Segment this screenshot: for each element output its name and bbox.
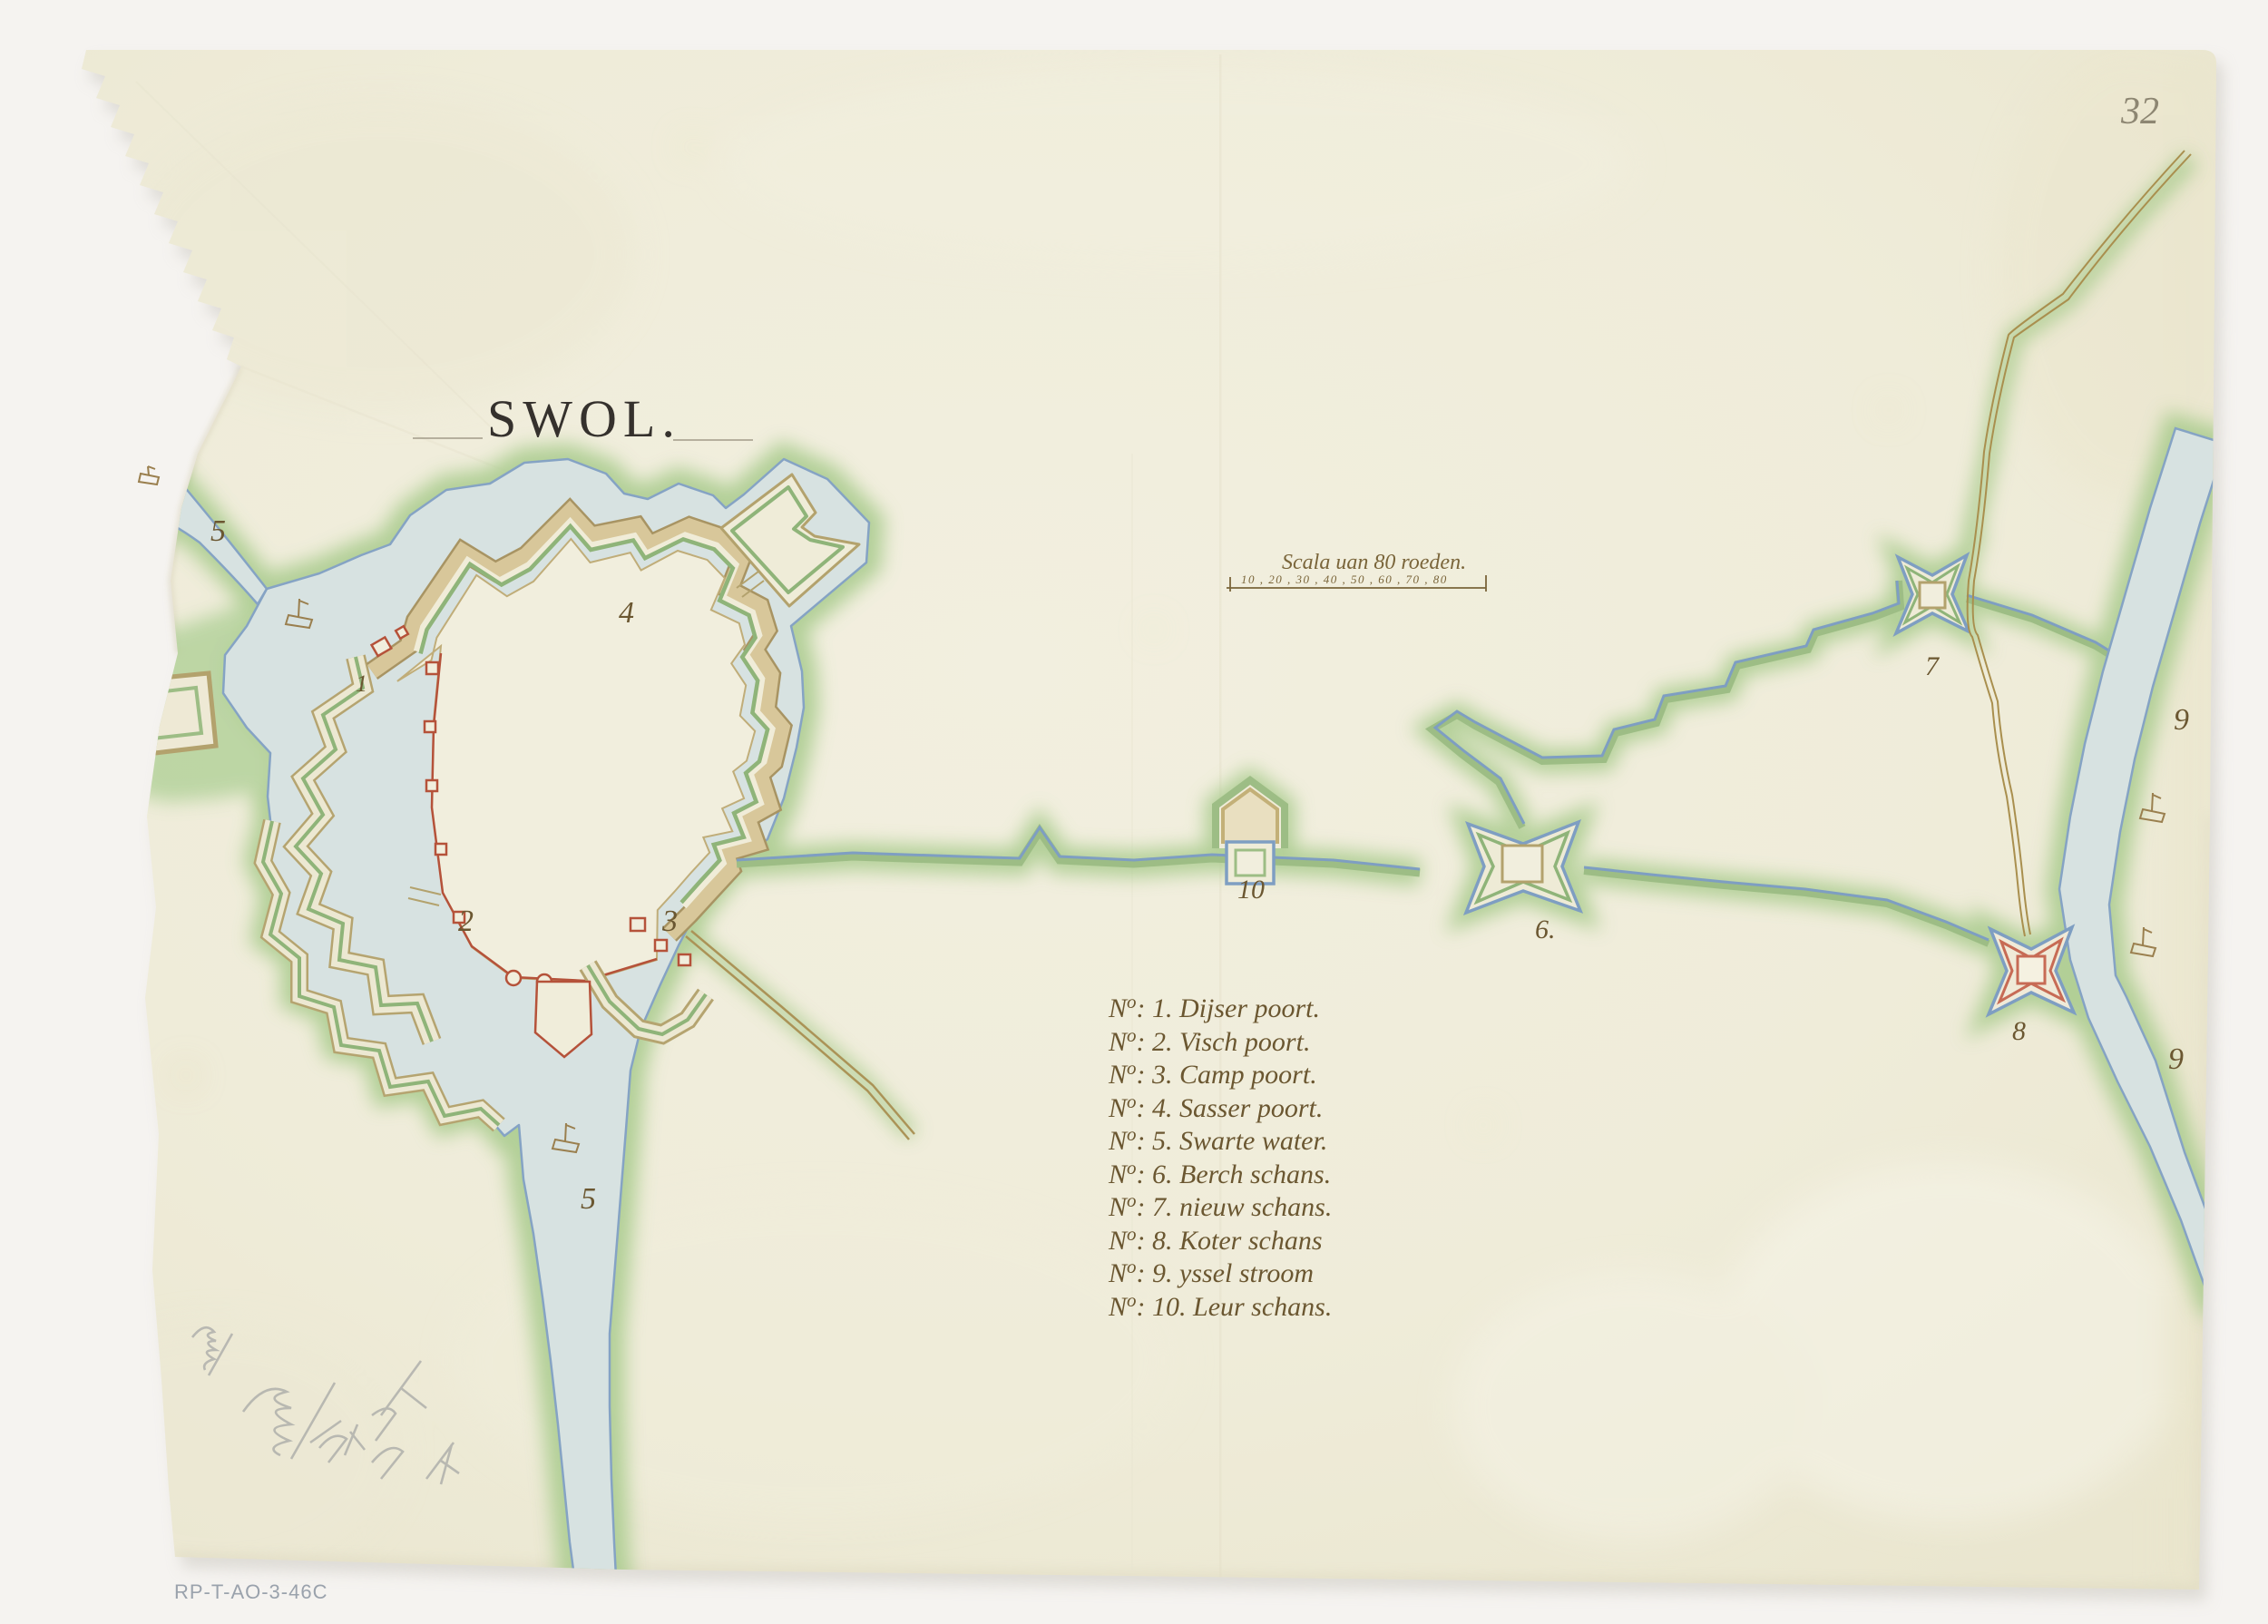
svg-text:No: 3. Camp poort.: No: 3. Camp poort. [1108,1057,1317,1090]
svg-text:No: 5. Swarte water.: No: 5. Swarte water. [1108,1123,1327,1156]
svg-text:10 , 20 , 30 , 40 , 50 , 60 ,: 10 , 20 , 30 , 40 , 50 , 60 , 70 , 80 [1241,572,1448,586]
svg-text:No: 4. Sasser poort.: No: 4. Sasser poort. [1108,1091,1323,1123]
svg-text:32: 32 [2120,91,2159,132]
svg-text:2: 2 [458,905,474,938]
svg-text:SWOL.: SWOL. [487,389,681,448]
svg-text:10: 10 [1237,875,1265,905]
svg-text:4: 4 [619,596,634,630]
svg-text:3: 3 [661,905,678,938]
svg-text:8: 8 [2012,1016,2026,1046]
svg-text:No: 7. nieuw schans.: No: 7. nieuw schans. [1108,1189,1332,1222]
svg-text:No: 8. Koter schans: No: 8. Koter schans [1108,1223,1323,1256]
svg-text:No: 9. yssel stroom: No: 9. yssel stroom [1108,1256,1314,1288]
svg-text:9: 9 [2174,703,2189,737]
svg-text:1: 1 [356,670,367,697]
svg-text:No: 6. Berch schans.: No: 6. Berch schans. [1108,1157,1331,1189]
svg-text:7: 7 [1925,651,1941,681]
svg-text:No: 1. Dijser poort.: No: 1. Dijser poort. [1108,991,1320,1023]
svg-text:RP-T-AO-3-46C: RP-T-AO-3-46C [174,1580,327,1603]
svg-text:6.: 6. [1535,915,1556,944]
svg-text:No: 2. Visch poort.: No: 2. Visch poort. [1108,1024,1310,1057]
svg-text:No: 10. Leur schans.: No: 10. Leur schans. [1108,1289,1332,1322]
svg-text:Scala uan 80 roeden.: Scala uan 80 roeden. [1282,551,1466,574]
svg-text:5: 5 [581,1182,596,1216]
svg-text:5: 5 [210,514,226,548]
svg-text:9: 9 [2168,1042,2184,1076]
